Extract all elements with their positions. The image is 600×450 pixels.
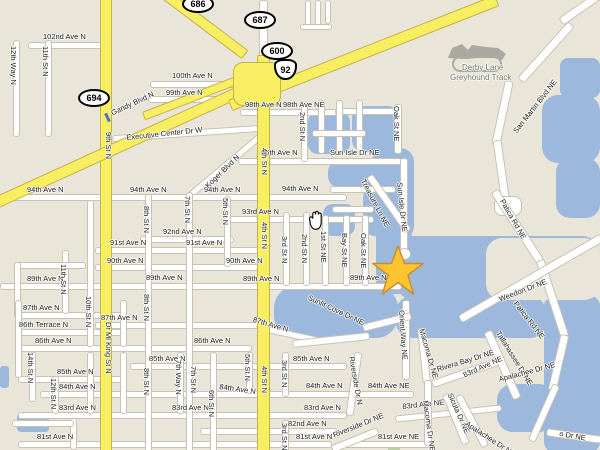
road-canal-st xyxy=(336,100,343,154)
street-label: 94th Ave N xyxy=(27,186,64,194)
hand-cursor-icon xyxy=(306,210,326,232)
street-label: 12th Way N xyxy=(9,46,17,85)
road-local xyxy=(15,300,22,378)
water-pond xyxy=(0,366,9,388)
street-label: 102nd Ave N xyxy=(43,33,86,41)
street-label: 94th Ave N xyxy=(282,185,319,193)
route-shield-600: 600 xyxy=(261,42,293,60)
road-san-martin xyxy=(491,80,514,146)
road-local xyxy=(120,352,127,414)
street-label: Sun Isle Dr NE xyxy=(330,149,380,157)
street-label: 90th Ave N xyxy=(107,257,144,265)
street-label: 3rd St N xyxy=(280,236,288,264)
road-local xyxy=(120,300,127,347)
street-label: 86th Terrace N xyxy=(19,321,68,329)
road-local xyxy=(12,420,74,427)
street-label: 7th St N xyxy=(189,366,197,393)
water-bay-east xyxy=(556,158,600,218)
route-shield-694: 694 xyxy=(78,89,110,107)
road-94th-ave xyxy=(0,194,347,201)
street-label: 1st St NE xyxy=(319,231,327,263)
street-label: Oak St NE xyxy=(392,106,400,141)
street-label: 86th Ave N xyxy=(35,337,72,345)
street-label: 86th Ave N xyxy=(194,337,231,345)
street-label: 2nd St N xyxy=(300,234,308,263)
street-label: 4th St N xyxy=(260,148,268,175)
star-icon[interactable] xyxy=(372,245,424,297)
street-label: 82nd Ave N xyxy=(288,420,327,428)
street-label: 84th Ave N xyxy=(59,383,96,391)
street-label: 14th St N xyxy=(26,352,34,383)
street-label: 83rd Ave N xyxy=(304,404,341,412)
street-label: 98th Ave N xyxy=(245,101,282,109)
street-label: 91st Ave N xyxy=(110,239,146,247)
road-stub xyxy=(300,24,332,30)
street-label: Bay St NE xyxy=(340,233,348,268)
street-label: 90th Ave N xyxy=(226,257,263,265)
street-label: 83rd Ave N xyxy=(59,404,96,412)
street-label: 11th St N xyxy=(41,46,49,77)
road-san-martin xyxy=(558,0,600,26)
street-label: 93rd Ave N xyxy=(242,208,279,216)
water-bay-north xyxy=(542,95,600,163)
street-label: Oak St NE xyxy=(359,233,367,268)
street-label: 83rd Ave N xyxy=(172,404,209,412)
street-label: 12th St N xyxy=(49,378,57,409)
street-label: 4th St N xyxy=(260,222,268,249)
road-102nd-ave xyxy=(28,42,105,49)
street-label: 8th St N xyxy=(142,294,150,321)
street-label: 85th Ave N xyxy=(293,355,330,363)
street-label: 94th Ave N xyxy=(130,186,167,194)
street-label: 84th Ave NE xyxy=(368,382,410,390)
street-label: 5th St N xyxy=(243,354,251,381)
road-canal-st xyxy=(356,100,363,152)
street-label: 98th Ave NE xyxy=(283,101,325,109)
road-86th-ave xyxy=(15,345,252,352)
road-stub xyxy=(325,0,331,24)
street-label: 3rd St N xyxy=(280,423,288,450)
highway-9th-st-mlk xyxy=(100,0,112,450)
street-label: 92nd Ave N xyxy=(163,228,202,236)
street-label: Dr Ml King St N xyxy=(104,322,112,374)
road-90th-ave xyxy=(95,264,270,271)
street-label: 7th Way N xyxy=(174,360,182,395)
road-local xyxy=(14,262,86,269)
street-label: 81st Ave N xyxy=(296,433,332,441)
street-label: 8th St N xyxy=(142,206,150,233)
street-label: 89th Ave N xyxy=(146,274,183,282)
map-canvas[interactable]: 102nd Ave N100th Ave N99th Ave N98th Ave… xyxy=(0,0,600,450)
street-label: 81st Ave N xyxy=(37,433,73,441)
street-label: Executive Center Dr W xyxy=(126,126,203,142)
street-label: 87th Ave N xyxy=(101,314,138,322)
route-shield-687: 687 xyxy=(244,11,276,29)
street-label: Derby Lane xyxy=(462,64,503,72)
street-label: 10th St N xyxy=(84,296,92,327)
street-label: 9th St N xyxy=(104,132,112,159)
street-label: 7th St N xyxy=(183,196,191,223)
road-canal-st xyxy=(332,206,374,213)
street-label: 84th Ave N xyxy=(306,382,343,390)
street-label: 87th Ave N xyxy=(23,304,60,312)
road-canal-st xyxy=(312,130,366,137)
street-label: 5th St N xyxy=(221,198,229,225)
street-label: 4th St N xyxy=(260,366,268,393)
street-label: 81st Ave NE xyxy=(378,433,419,441)
road-85th-ave xyxy=(130,363,347,370)
street-label: 89th Ave N xyxy=(243,275,280,283)
street-label: 100th Ave N xyxy=(172,72,213,80)
street-label: 2nd St N xyxy=(298,112,306,141)
road-91st-ave xyxy=(95,247,267,254)
street-label: 85th Ave N xyxy=(57,368,94,376)
road-98th-ave-ne xyxy=(335,108,399,115)
water-bay-north xyxy=(560,58,600,98)
road-93rd-ave xyxy=(228,216,374,223)
street-label: 3rd St N xyxy=(280,360,288,388)
street-label: 11th St N xyxy=(59,264,67,295)
street-label: 99th Ave N xyxy=(166,89,203,97)
street-label: 8th St N xyxy=(142,368,150,395)
street-label: 91st Ave N xyxy=(186,239,222,247)
street-label: Greyhound Track xyxy=(450,74,511,82)
street-label: 6th St N xyxy=(207,390,215,417)
